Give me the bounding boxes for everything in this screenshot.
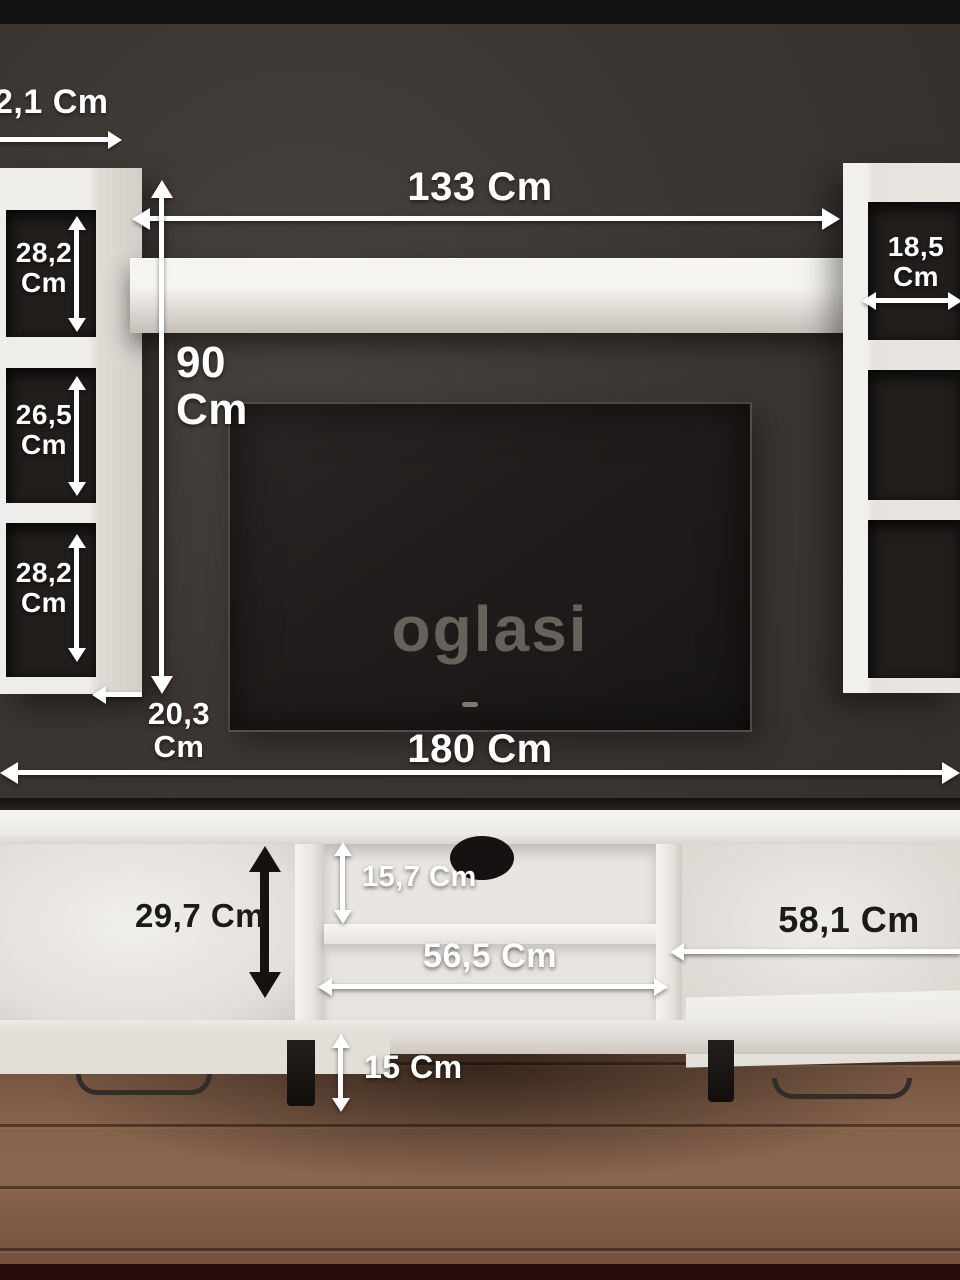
dim-label-leg-height: 15 Cm bbox=[364, 1051, 468, 1085]
dim-arrow-base-shelf-height bbox=[340, 856, 345, 910]
top-shelf-beam bbox=[130, 258, 856, 333]
dim-arrow-shelf-width bbox=[150, 216, 822, 221]
dim-arrow-left-depth bbox=[106, 692, 142, 697]
stand-leg-left bbox=[287, 1040, 315, 1106]
dim-label-base-shelf-height: 15,7 Cm bbox=[362, 862, 478, 893]
dim-arrow-top-depth bbox=[0, 137, 108, 142]
dim-label-base-middle-width: 56,5 Cm bbox=[412, 938, 568, 974]
dim-label-unit-height: 90 Cm bbox=[170, 340, 256, 433]
dim-arrow-right-width bbox=[876, 298, 948, 303]
door-handle-right bbox=[772, 1078, 912, 1099]
right-shelf-opening-bottom bbox=[868, 520, 960, 678]
dim-label-left-top: 28,2 Cm bbox=[2, 238, 86, 297]
tv-screen: oglasi bbox=[228, 402, 752, 732]
tv-logo-dot bbox=[462, 702, 478, 707]
dim-label-total-width: 180 Cm bbox=[320, 728, 640, 770]
dim-arrow-leg-height bbox=[338, 1048, 343, 1098]
bottom-strip bbox=[0, 1264, 960, 1280]
dim-label-base-left-height: 29,7 Cm bbox=[134, 899, 266, 934]
stand-leg-right bbox=[708, 1040, 734, 1102]
dim-label-right-width: 18,5 Cm bbox=[873, 232, 959, 291]
dim-label-base-right-width: 58,1 Cm bbox=[778, 901, 920, 939]
top-strip bbox=[0, 0, 960, 24]
dim-arrow-unit-height bbox=[159, 198, 164, 676]
watermark-logo: oglasi bbox=[230, 592, 750, 666]
right-shelf-opening-middle bbox=[868, 370, 960, 500]
dim-label-top-depth: 2,1 Cm bbox=[0, 84, 110, 120]
dim-arrow-base-middle-width bbox=[332, 984, 654, 989]
dim-label-left-middle: 26,5 Cm bbox=[2, 400, 86, 459]
product-photo: oglasi 2,1 Cm 133 Cm 90 Cm 28,2 Cm 26,5 … bbox=[0, 0, 960, 1280]
dim-arrow-base-right-width bbox=[684, 949, 960, 954]
dim-label-left-depth: 20,3 Cm bbox=[118, 698, 240, 764]
door-handle-left bbox=[76, 1074, 212, 1095]
dim-label-shelf-width: 133 Cm bbox=[330, 166, 630, 208]
dim-label-left-bottom: 28,2 Cm bbox=[2, 558, 86, 617]
